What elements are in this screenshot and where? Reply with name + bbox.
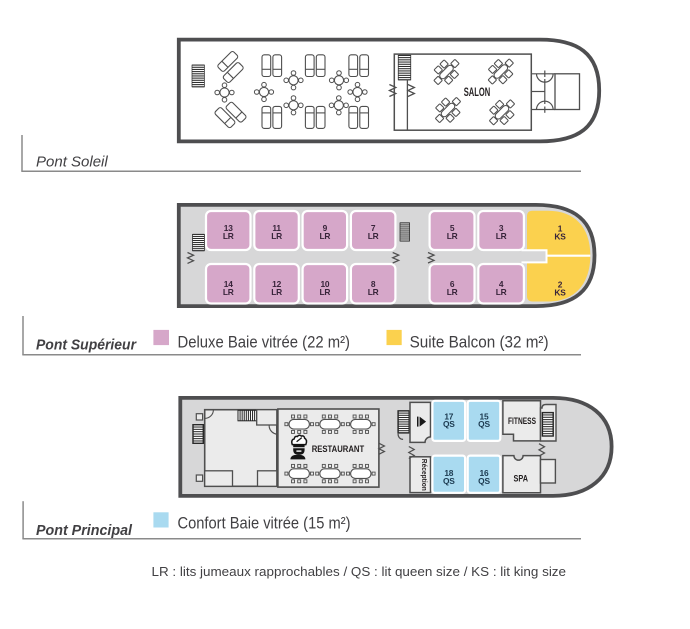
svg-text:LR: LR: [368, 231, 379, 241]
svg-text:LR: LR: [447, 231, 458, 241]
svg-text:KS: KS: [554, 288, 566, 298]
svg-text:QS: QS: [478, 419, 490, 429]
svg-text:LR: LR: [223, 287, 234, 297]
svg-text:RESTAURANT: RESTAURANT: [312, 444, 365, 455]
svg-text:QS: QS: [443, 419, 455, 429]
svg-text:Confort Baie vitrée (15 m²): Confort Baie vitrée (15 m²): [178, 515, 351, 533]
svg-text:LR: LR: [223, 231, 234, 241]
svg-text:LR: LR: [368, 287, 379, 297]
svg-text:Deluxe Baie vitrée (22 m²): Deluxe Baie vitrée (22 m²): [178, 334, 351, 352]
svg-text:QS: QS: [478, 476, 490, 486]
svg-text:LR: LR: [271, 231, 282, 241]
svg-text:LR: LR: [320, 231, 331, 241]
svg-text:SPA: SPA: [514, 474, 529, 485]
svg-text:LR : lits jumeaux rapprochable: LR : lits jumeaux rapprochables / QS : l…: [152, 564, 567, 579]
svg-text:LR: LR: [447, 287, 458, 297]
svg-text:Pont Supérieur: Pont Supérieur: [36, 336, 137, 353]
svg-text:FITNESS: FITNESS: [508, 416, 536, 427]
svg-text:LR: LR: [496, 231, 507, 241]
svg-text:Réception: Réception: [420, 459, 427, 491]
svg-text:LR: LR: [271, 287, 282, 297]
svg-text:SALON: SALON: [464, 85, 491, 99]
svg-text:LR: LR: [496, 287, 507, 297]
svg-text:KS: KS: [554, 231, 566, 241]
svg-text:QS: QS: [443, 476, 455, 486]
svg-text:Suite Balcon (32 m²): Suite Balcon (32 m²): [410, 334, 549, 352]
svg-text:LR: LR: [320, 287, 331, 297]
svg-text:Pont Principal: Pont Principal: [36, 522, 133, 539]
svg-text:Pont Soleil: Pont Soleil: [36, 154, 108, 171]
